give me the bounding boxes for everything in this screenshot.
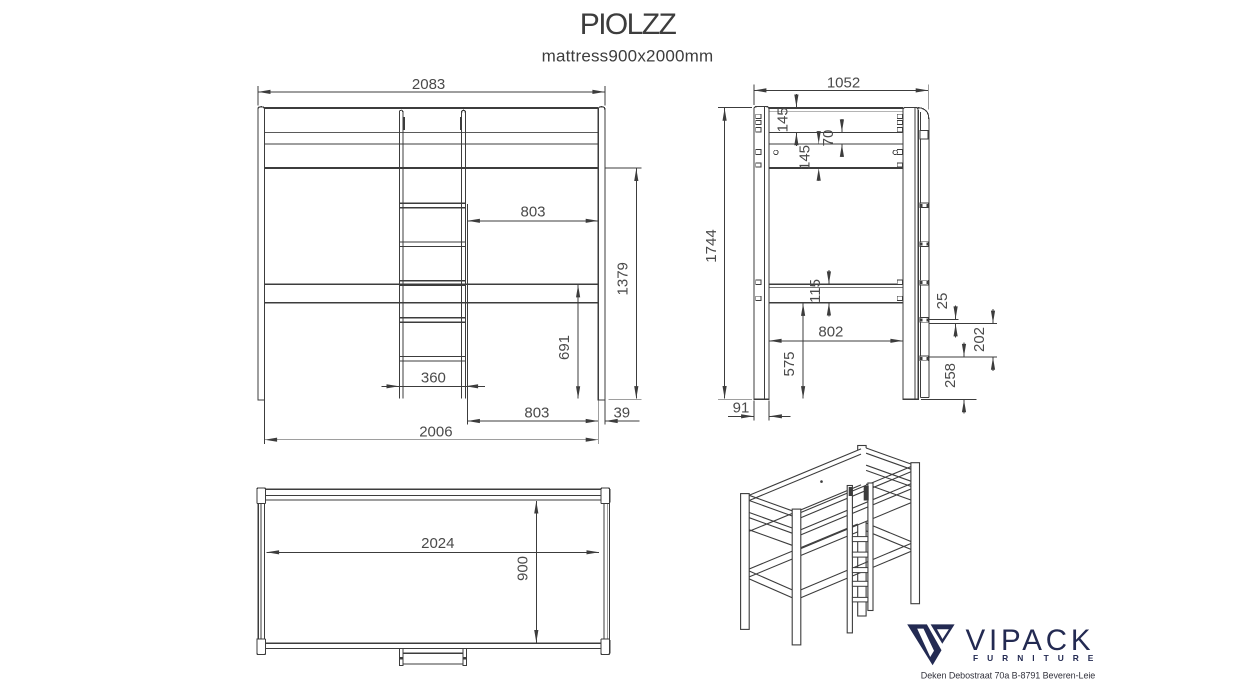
- svg-text:mattress900x2000mm: mattress900x2000mm: [542, 47, 714, 66]
- svg-text:PIOLZZ: PIOLZZ: [580, 8, 677, 41]
- svg-text:803: 803: [520, 204, 545, 221]
- svg-text:145: 145: [797, 145, 814, 170]
- svg-text:70: 70: [820, 130, 837, 147]
- svg-text:691: 691: [556, 335, 573, 360]
- svg-text:575: 575: [781, 351, 798, 376]
- svg-text:FURNITURE: FURNITURE: [973, 653, 1102, 663]
- svg-text:1379: 1379: [615, 262, 632, 295]
- svg-text:39: 39: [613, 404, 630, 421]
- svg-text:145: 145: [774, 107, 791, 132]
- svg-text:91: 91: [733, 399, 750, 416]
- svg-text:900: 900: [514, 556, 531, 581]
- svg-text:2006: 2006: [419, 423, 452, 440]
- svg-text:115: 115: [807, 279, 824, 303]
- svg-text:202: 202: [971, 327, 988, 352]
- svg-text:25: 25: [934, 293, 951, 310]
- svg-text:2083: 2083: [412, 76, 445, 93]
- svg-text:1744: 1744: [703, 229, 720, 262]
- svg-text:803: 803: [524, 404, 549, 421]
- svg-text:802: 802: [818, 324, 843, 341]
- svg-text:1052: 1052: [827, 74, 860, 91]
- svg-text:258: 258: [942, 363, 959, 388]
- svg-text:Deken Debostraat 70a B-8791 Be: Deken Debostraat 70a B-8791 Beveren-Leie: [921, 671, 1095, 681]
- svg-text:360: 360: [421, 370, 446, 387]
- svg-text:2024: 2024: [421, 535, 454, 552]
